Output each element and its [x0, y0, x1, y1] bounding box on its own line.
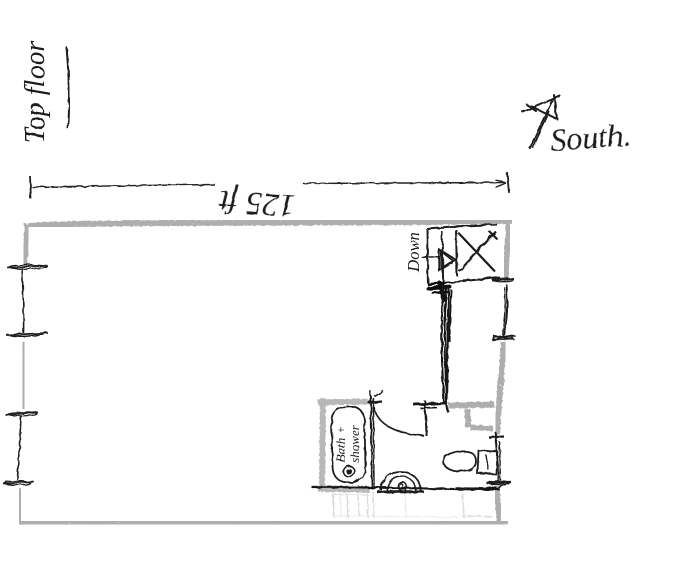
- svg-text:Down: Down: [404, 232, 423, 272]
- svg-text:Bath +shower: Bath +shower: [333, 424, 362, 463]
- svg-text:125 ft: 125 ft: [217, 182, 296, 223]
- svg-text:South.: South.: [549, 116, 632, 158]
- svg-text:Top floor: Top floor: [20, 41, 51, 144]
